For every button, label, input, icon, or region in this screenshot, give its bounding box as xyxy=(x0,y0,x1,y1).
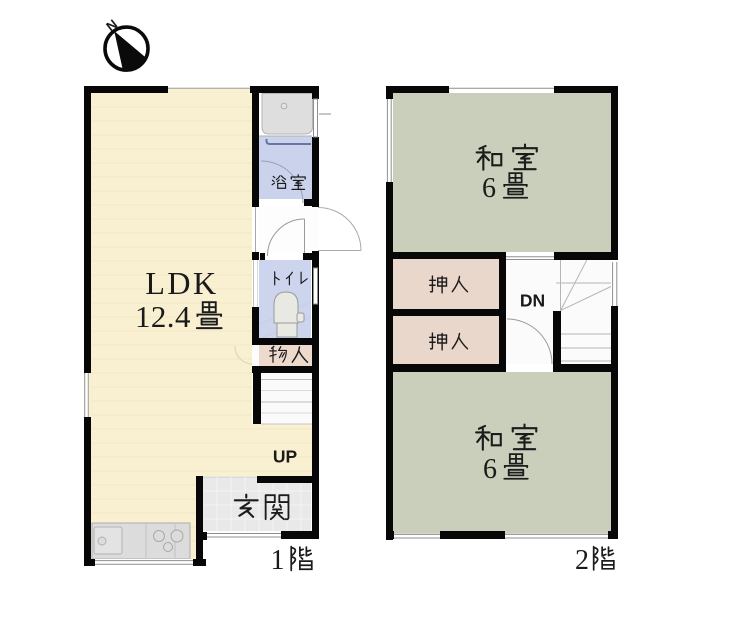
svg-text:DN: DN xyxy=(520,291,545,311)
svg-text:6: 6 xyxy=(483,454,497,485)
svg-text:1: 1 xyxy=(271,545,285,576)
svg-text:2: 2 xyxy=(575,545,589,576)
svg-text:LDK: LDK xyxy=(145,265,218,301)
svg-text:12.4: 12.4 xyxy=(135,299,191,334)
svg-text:UP: UP xyxy=(273,447,298,467)
svg-text:6: 6 xyxy=(482,173,496,204)
